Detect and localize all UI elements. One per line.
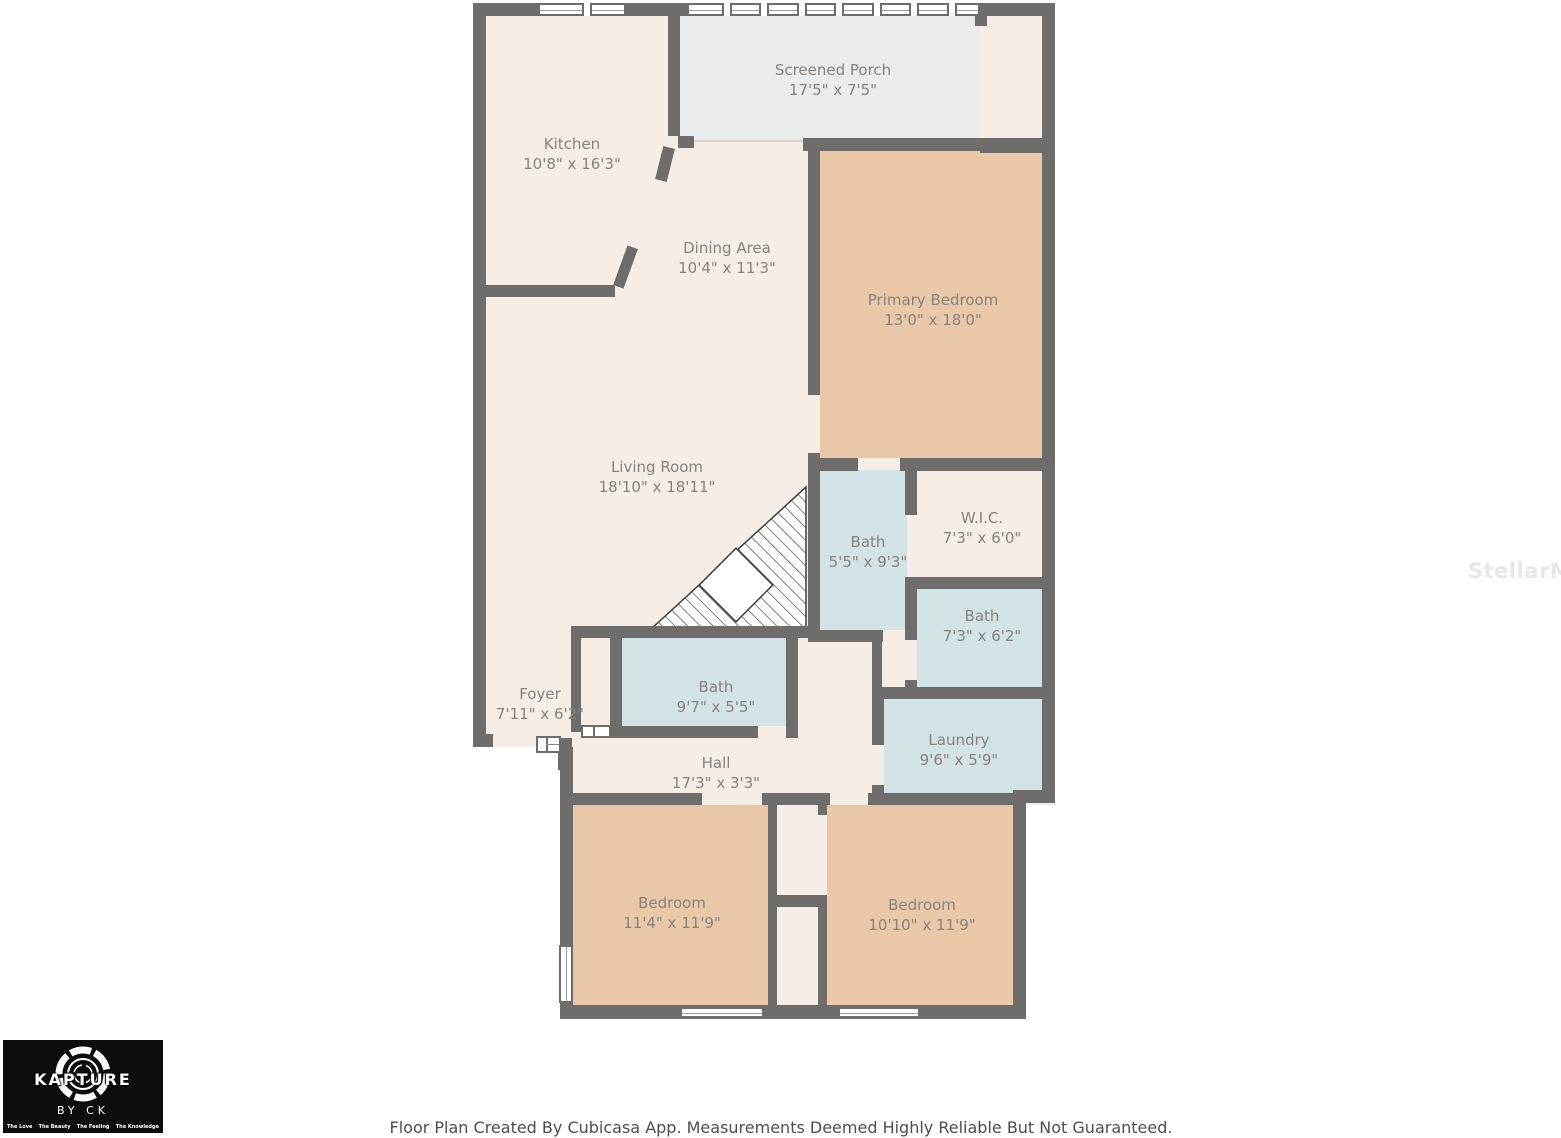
wall-segment [818,805,827,815]
stellar-mls-watermark: StellarMLS [1468,559,1561,583]
room-name: Screened Porch [775,60,891,80]
room-label-hall: Hall 17'3" x 3'3" [672,753,760,793]
room-name: Dining Area [678,238,776,258]
wall-segment [872,630,882,687]
window-mullion [834,3,844,16]
room-label-bath-hall: Bath 7'3" x 6'2" [943,606,1022,646]
room-dims: 10'10" x 11'9" [868,915,975,935]
entry-door-symbol [536,736,561,753]
room-name: Living Room [599,457,716,477]
logo-sub-text: BY CK [3,1104,163,1117]
footer-disclaimer: Floor Plan Created By Cubicasa App. Meas… [16,1118,1546,1137]
room-name: Bath [677,677,756,697]
room-name: Bedroom [868,895,975,915]
door-leaf-line [593,727,595,736]
wall-segment [900,458,1043,471]
wall-segment [808,453,820,642]
room-dims: 9'6" x 5'9" [920,750,999,770]
room-name: Foyer [496,684,584,704]
room-label-foyer: Foyer 7'11" x 6'2" [496,684,584,724]
room-label-wic: W.I.C. 7'3" x 6'0" [943,508,1022,548]
wall-segment [808,150,820,395]
room-label-screened-porch: Screened Porch 17'5" x 7'5" [775,60,891,100]
wall-segment [905,577,1042,589]
room-dims: 7'3" x 6'2" [943,626,1022,646]
wall-segment [868,793,1013,805]
window-pane-line [682,1013,762,1014]
room-dims: 9'7" x 5'5" [677,697,756,717]
wall-segment [473,3,486,747]
window-symbol [838,1007,920,1018]
room-name: Kitchen [523,134,621,154]
window-mullion [759,3,769,16]
window-mullion [909,3,919,16]
wall-segment [610,726,758,738]
room-label-bath-primary: Bath 5'5" x 9'3" [829,532,908,572]
room-label-dining: Dining Area 10'4" x 11'3" [678,238,776,278]
closet-door-symbol [581,725,611,738]
wall-segment [762,793,830,805]
room-dims: 17'5" x 7'5" [775,80,891,100]
window-mullion [872,3,882,16]
wall-segment [808,458,858,471]
window-mullion [722,3,732,16]
wall-segment [872,785,884,793]
wall-segment [975,16,987,26]
wall-segment [473,734,493,747]
window-mullion [947,3,957,16]
window-pane-line [840,1013,918,1014]
room-dims: 7'3" x 6'0" [943,528,1022,548]
fireplace-icon [645,482,808,634]
room-dims: 7'11" x 6'2" [496,704,584,724]
room-label-bath-front: Bath 9'7" x 5'5" [677,677,756,717]
room-dims: 18'10" x 18'11" [599,477,716,497]
room-label-bedroom-left: Bedroom 11'4" x 11'9" [623,893,721,933]
room-name: Laundry [920,730,999,750]
wall-segment [980,140,1055,153]
wall-segment [610,626,622,738]
window-mullion [797,3,807,16]
wall-segment [678,136,694,148]
wall-segment [786,626,798,738]
room-name: Primary Bedroom [868,290,999,310]
window-symbol [680,1007,764,1018]
room-dims: 10'8" x 16'3" [523,154,621,174]
wall-segment [872,687,1042,699]
wall-segment [486,285,615,297]
window-mullion [582,3,592,16]
room-label-primary-bedroom: Primary Bedroom 13'0" x 18'0" [868,290,999,330]
door-bar-line [546,744,559,745]
room-name: Bedroom [623,893,721,913]
room-dims: 10'4" x 11'3" [678,258,776,278]
window-symbol [538,3,626,16]
wall-segment [905,458,917,515]
room-label-laundry: Laundry 9'6" x 5'9" [920,730,999,770]
wall-segment [1013,790,1026,1019]
wall-segment [905,680,917,687]
wall-segment [818,895,827,1007]
window-symbol [687,3,980,16]
room-name: Bath [829,532,908,552]
wall-segment [872,687,884,745]
room-name: Bath [943,606,1022,626]
wall-segment [1042,3,1055,803]
room-label-kitchen: Kitchen 10'8" x 16'3" [523,134,621,174]
room-label-living-room: Living Room 18'10" x 18'11" [599,457,716,497]
wall-segment [560,793,702,805]
window-pane-line [566,947,567,1001]
logo-brand-text: KAPTURE [3,1070,163,1089]
wall-segment [560,1005,1026,1019]
porch-opening-line [692,140,803,142]
room-name: Hall [672,753,760,773]
room-name: W.I.C. [943,508,1022,528]
window-symbol [559,945,573,1003]
room-label-bedroom-right: Bedroom 10'10" x 11'9" [868,895,975,935]
floorplan-page: Screened Porch 17'5" x 7'5" Kitchen 10'8… [0,0,1561,1138]
room-dims: 17'3" x 3'3" [672,773,760,793]
room-dims: 11'4" x 11'9" [623,913,721,933]
wall-segment [668,3,680,136]
room-dims: 5'5" x 9'3" [829,552,908,572]
room-dims: 13'0" x 18'0" [868,310,999,330]
wall-segment [571,626,813,638]
